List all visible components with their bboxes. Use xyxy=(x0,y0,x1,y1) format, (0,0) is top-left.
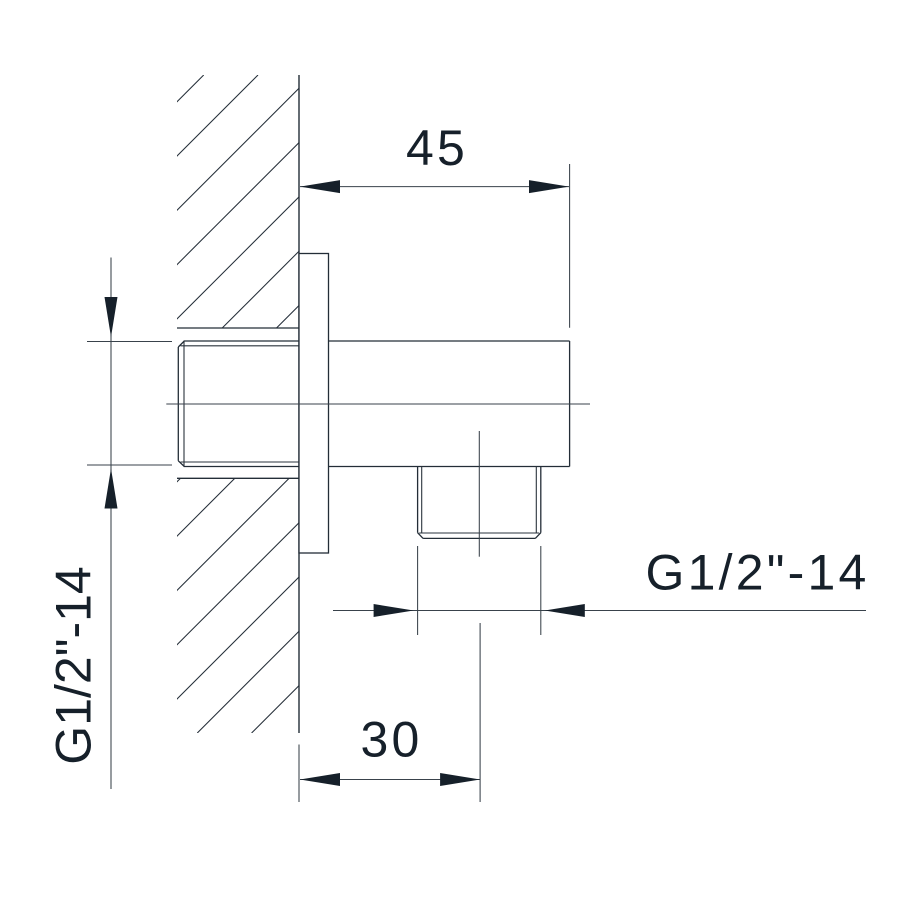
svg-text:30: 30 xyxy=(361,712,423,768)
svg-text:G1/2"-14: G1/2"-14 xyxy=(646,545,870,601)
svg-text:G1/2"-14: G1/2"-14 xyxy=(45,566,101,764)
svg-text:45: 45 xyxy=(406,120,468,176)
